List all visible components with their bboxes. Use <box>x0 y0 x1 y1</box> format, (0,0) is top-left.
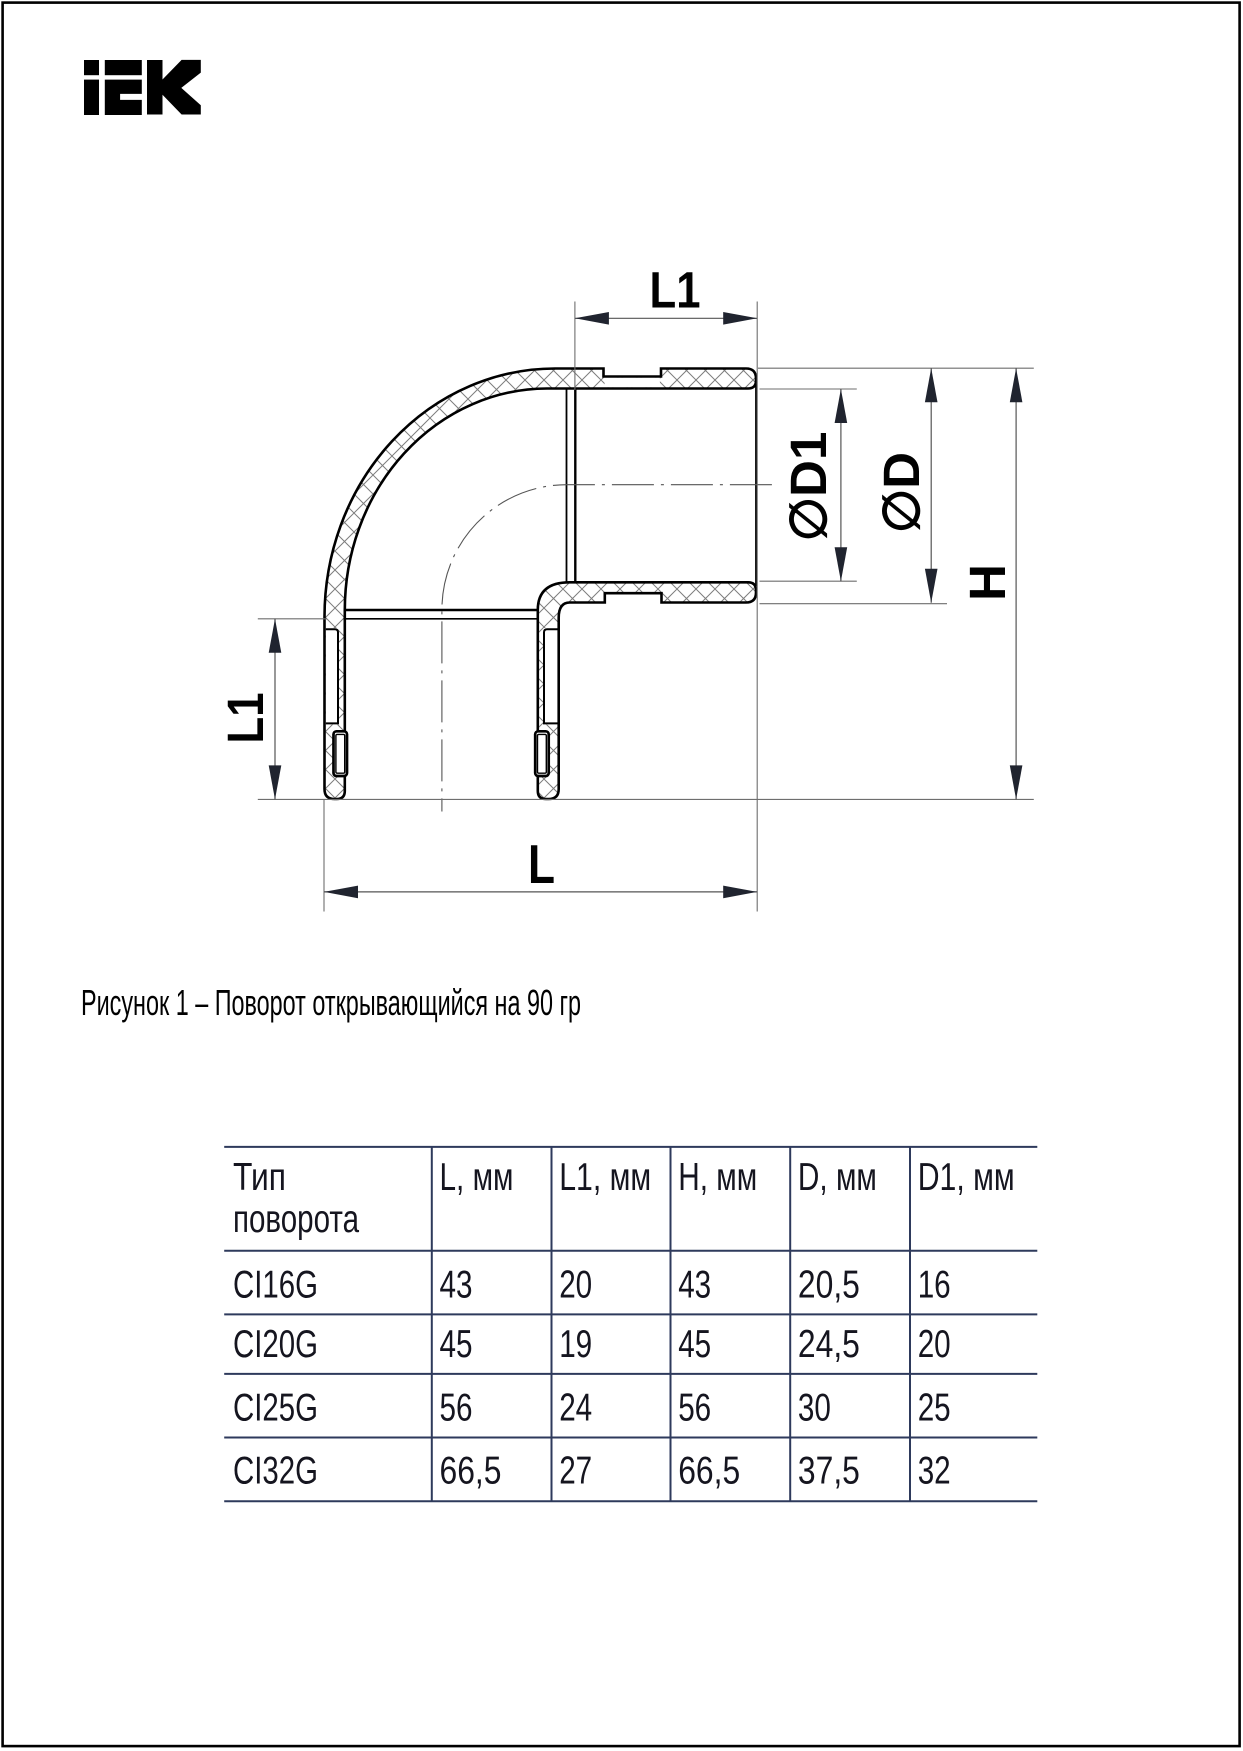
svg-text:∅D: ∅D <box>873 452 930 533</box>
svg-text:66,5: 66,5 <box>440 1450 502 1493</box>
svg-text:43: 43 <box>678 1264 711 1307</box>
svg-text:16: 16 <box>918 1264 951 1307</box>
svg-text:поворота: поворота <box>233 1198 359 1241</box>
svg-text:20,5: 20,5 <box>798 1264 860 1307</box>
svg-text:CI32G: CI32G <box>233 1450 318 1493</box>
svg-text:H: H <box>959 564 1016 601</box>
svg-text:25: 25 <box>918 1387 951 1430</box>
svg-text:66,5: 66,5 <box>678 1450 740 1493</box>
svg-text:37,5: 37,5 <box>798 1450 860 1493</box>
svg-text:D, мм: D, мм <box>798 1156 877 1199</box>
svg-text:19: 19 <box>559 1323 592 1366</box>
svg-text:∅D1: ∅D1 <box>780 432 837 542</box>
svg-text:20: 20 <box>918 1323 951 1366</box>
svg-text:L1, мм: L1, мм <box>559 1156 651 1199</box>
svg-text:D1, мм: D1, мм <box>918 1156 1015 1199</box>
svg-text:24,5: 24,5 <box>798 1323 860 1366</box>
svg-text:27: 27 <box>559 1450 592 1493</box>
svg-text:45: 45 <box>678 1323 711 1366</box>
svg-text:Тип: Тип <box>233 1156 286 1199</box>
svg-text:Рисунок 1 – Поворот открывающи: Рисунок 1 – Поворот открывающийся на 90 … <box>81 982 581 1023</box>
svg-text:L, мм: L, мм <box>440 1156 514 1199</box>
svg-text:56: 56 <box>440 1387 473 1430</box>
svg-text:CI16G: CI16G <box>233 1264 318 1307</box>
svg-text:45: 45 <box>440 1323 473 1366</box>
svg-text:L: L <box>528 833 555 895</box>
svg-text:L1: L1 <box>217 693 274 744</box>
svg-text:20: 20 <box>559 1264 592 1307</box>
svg-text:56: 56 <box>678 1387 711 1430</box>
svg-text:24: 24 <box>559 1387 592 1430</box>
svg-text:CI25G: CI25G <box>233 1387 318 1430</box>
svg-text:H, мм: H, мм <box>678 1156 757 1199</box>
svg-text:43: 43 <box>440 1264 473 1307</box>
svg-text:32: 32 <box>918 1450 951 1493</box>
svg-text:30: 30 <box>798 1387 831 1430</box>
svg-text:CI20G: CI20G <box>233 1323 318 1366</box>
svg-text:L1: L1 <box>650 262 701 319</box>
